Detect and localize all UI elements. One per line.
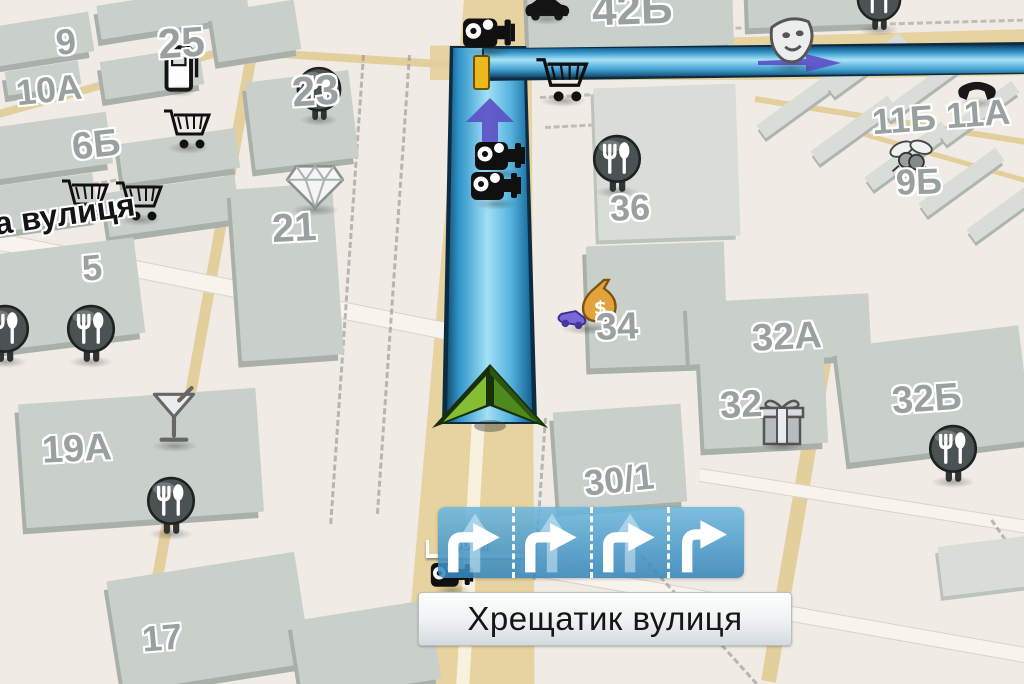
position-arrow bbox=[428, 360, 552, 438]
building-number-label: 34 bbox=[595, 307, 639, 346]
lane-indicator bbox=[590, 507, 667, 578]
building-number-label: 17 bbox=[141, 618, 184, 657]
building-number-label: 9 bbox=[54, 23, 78, 61]
building-number-label: 32Б bbox=[891, 378, 963, 421]
building-number-label: 5 bbox=[80, 249, 103, 287]
lane-indicator bbox=[667, 507, 744, 578]
building-number-label: 19A bbox=[41, 428, 113, 470]
lane-arrow-right-turn bbox=[595, 509, 667, 577]
lane-arrow-right-turn bbox=[517, 509, 589, 577]
building-number-label: 25 bbox=[157, 20, 207, 65]
building-number-label: 11Б bbox=[871, 100, 937, 140]
building-number-label: 9Б bbox=[895, 163, 942, 201]
lane-arrow-right-turn bbox=[440, 509, 512, 577]
navigation-map[interactable]: $ 910A256Б2321519A1742Б363430/132A3232Б1… bbox=[0, 0, 1024, 684]
current-street-panel: Хрещатик вулиця bbox=[418, 592, 792, 646]
building-number-label: 42Б bbox=[591, 0, 673, 33]
building-number-label: 36 bbox=[609, 189, 650, 226]
building-number-label: 23 bbox=[291, 68, 341, 113]
lane-arrow-right-turn-only bbox=[672, 509, 744, 577]
current-street-name: Хрещатик вулиця bbox=[467, 600, 742, 638]
lane-indicator bbox=[438, 507, 512, 578]
lane-assist-panel bbox=[438, 507, 744, 578]
building-number-label: 6Б bbox=[70, 124, 122, 167]
building-number-label: 32A bbox=[751, 316, 823, 358]
building-number-label: 10A bbox=[14, 69, 83, 112]
building-labels-layer: 910A256Б2321519A1742Б363430/132A3232Б11Б… bbox=[0, 0, 1024, 684]
lane-indicator bbox=[512, 507, 589, 578]
building-number-label: 11A bbox=[945, 94, 1011, 134]
building-number-label: 21 bbox=[271, 207, 318, 249]
building-number-label: 32 bbox=[719, 385, 763, 425]
building-number-label: 30/1 bbox=[582, 458, 655, 501]
